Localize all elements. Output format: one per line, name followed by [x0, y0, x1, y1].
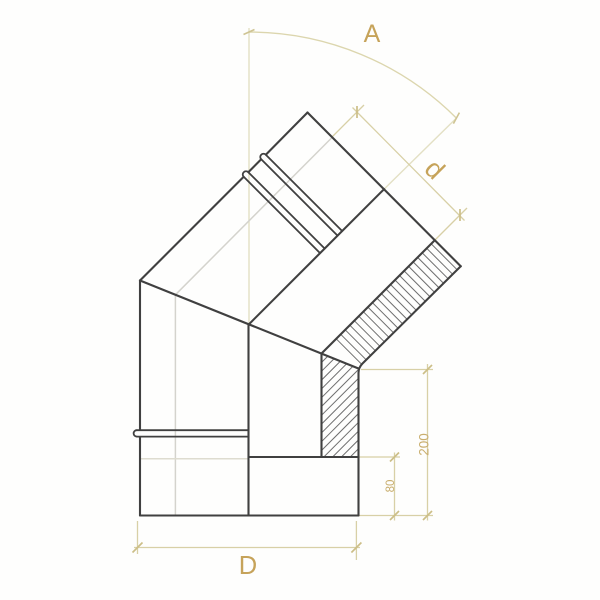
svg-text:200: 200	[417, 433, 432, 456]
svg-text:D: D	[239, 552, 257, 580]
svg-text:80: 80	[385, 480, 397, 493]
svg-text:A: A	[364, 20, 381, 48]
